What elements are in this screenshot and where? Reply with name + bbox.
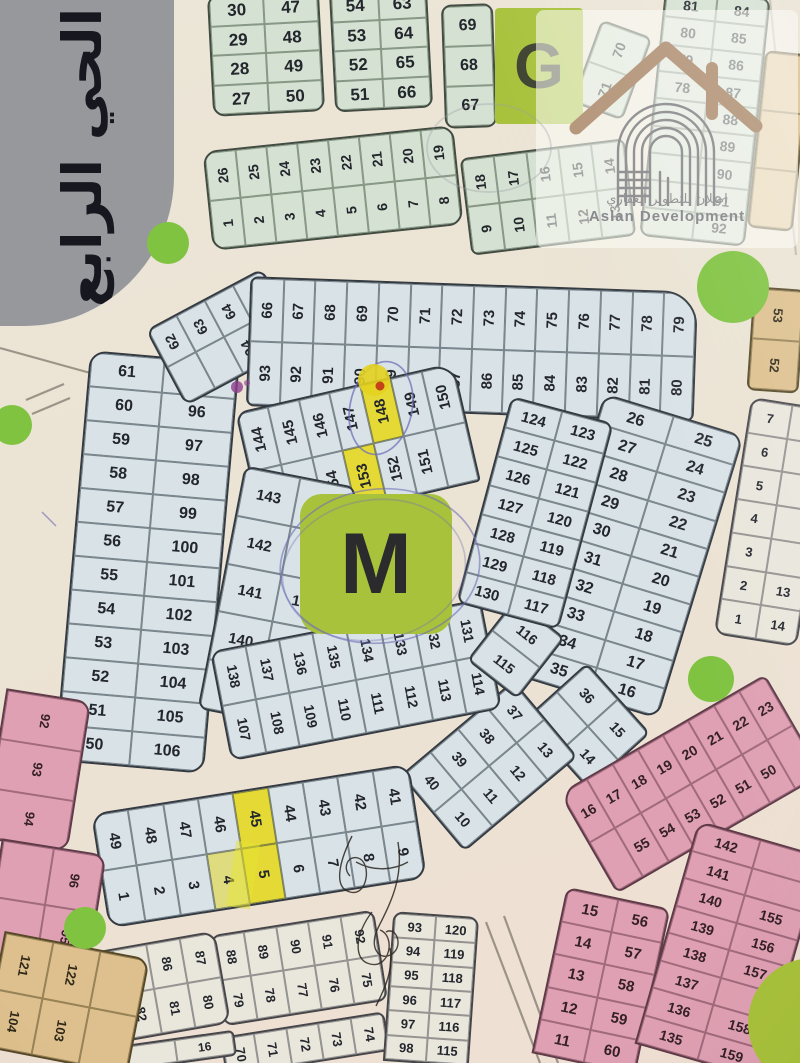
- plot-block-ring-bottom: 494847464544434241123456789: [91, 764, 427, 929]
- watermark-arabic-text: اصلان للتطوير العقاري: [606, 192, 727, 207]
- plot-cell-74: 74: [504, 287, 538, 351]
- plot-cell: [79, 1008, 137, 1063]
- plot-cell-80: 80: [187, 977, 228, 1027]
- plot-cell-2: 2: [241, 194, 277, 245]
- plot-cell-14: 14: [756, 605, 800, 645]
- district-sign: الحي الرابع: [0, 0, 174, 326]
- pen-tick: [42, 512, 56, 526]
- plot-cell-26: 26: [205, 150, 241, 201]
- plot-block-top-b: 5463536452655166: [329, 0, 433, 112]
- plot-cell-24: 24: [266, 144, 302, 195]
- district-sign-text: الحي الرابع: [52, 7, 115, 306]
- plot-cell-54: 54: [331, 0, 379, 22]
- roundabout-circle: [64, 907, 106, 949]
- plot-cell-72: 72: [440, 285, 474, 349]
- plot-cell-93: 93: [393, 913, 436, 940]
- plot-block-top-a: 3047294828492750: [207, 0, 325, 117]
- plot-cell-119: 119: [433, 940, 476, 967]
- district-m-block: M: [300, 494, 452, 634]
- plot-cell-47: 47: [263, 0, 318, 24]
- plot-cell-68: 68: [314, 281, 348, 345]
- plot-cell-69: 69: [443, 5, 492, 47]
- plot-cell-77: 77: [599, 290, 633, 354]
- plot-cell-6: 6: [364, 182, 400, 233]
- plot-cell-65: 65: [381, 47, 429, 79]
- plot-cell-115: 115: [426, 1038, 469, 1063]
- plot-cell-96: 96: [388, 986, 431, 1013]
- plot-cell-96: 96: [45, 849, 104, 913]
- plot-map-photo: 3047294828492750546353645265516669686726…: [0, 0, 800, 1063]
- plot-cell-19: 19: [420, 127, 456, 178]
- district-m-letter: M: [340, 515, 412, 614]
- plot-cell-71: 71: [409, 284, 443, 348]
- plot-cell-120: 120: [434, 916, 477, 943]
- plot-cell-118: 118: [431, 965, 474, 992]
- plot-cell-93: 93: [248, 341, 282, 405]
- plot-cell-1: 1: [716, 599, 761, 639]
- plot-cell-4: 4: [302, 188, 338, 239]
- plot-cell-75: 75: [535, 288, 569, 352]
- plot-cell-67: 67: [446, 85, 495, 127]
- plot-cell-23: 23: [297, 140, 333, 191]
- plot-cell-116: 116: [428, 1013, 471, 1040]
- roundabout-circle: [688, 656, 734, 702]
- plot-cell-1: 1: [210, 198, 246, 249]
- plot-cell-78: 78: [630, 292, 664, 356]
- plot-cell-117: 117: [429, 989, 472, 1016]
- plot-cell-92: 92: [340, 912, 379, 961]
- plot-cell-20: 20: [390, 131, 426, 182]
- plot-cell-52: 52: [749, 338, 800, 391]
- plot-cell-22: 22: [328, 137, 364, 188]
- plot-cell-28: 28: [212, 53, 267, 85]
- plot-cell-30: 30: [209, 0, 264, 26]
- plot-cell-9: 9: [381, 821, 425, 882]
- plot-block-south-1: 88899091927978777675: [210, 910, 388, 1027]
- plot-cell-94: 94: [392, 938, 435, 965]
- plot-cell-76: 76: [567, 289, 601, 353]
- plot-cell-66: 66: [383, 76, 431, 108]
- plot-cell-70: 70: [377, 283, 411, 347]
- plot-cell-95: 95: [390, 962, 433, 989]
- aslan-logo-icon: [536, 10, 798, 206]
- plot-cell-80: 80: [660, 356, 694, 420]
- plot-cell-48: 48: [264, 21, 319, 53]
- roundabout-circle: [697, 251, 769, 323]
- plot-cell-69: 69: [345, 282, 379, 346]
- plot-block-west-1: 929394: [0, 688, 91, 852]
- aslan-development-watermark: اصلان للتطوير العقاري Aslan Development: [536, 10, 798, 248]
- plot-cell-49: 49: [266, 50, 321, 82]
- plot-cell-21: 21: [359, 134, 395, 185]
- plot-cell-74: 74: [350, 1014, 388, 1055]
- plot-cell-29: 29: [211, 24, 266, 56]
- plot-cell-27: 27: [214, 82, 269, 114]
- plot-cell-75: 75: [347, 955, 386, 1004]
- plot-cell-83: 83: [565, 352, 599, 416]
- plot-cell-64: 64: [379, 17, 427, 49]
- plot-cell-68: 68: [444, 45, 493, 87]
- plot-cell-98: 98: [385, 1035, 428, 1062]
- plot-cell-106: 106: [129, 731, 205, 771]
- plot-cell-97: 97: [387, 1010, 430, 1037]
- plot-block-south-4: 931209411995118961179711698115: [383, 911, 479, 1063]
- plot-cell-73: 73: [472, 286, 506, 350]
- plot-block-strip-1: 262524232221201912345678: [202, 125, 463, 251]
- plot-cell: [90, 952, 148, 1017]
- plot-cell-86: 86: [470, 349, 504, 413]
- plot-cell-8: 8: [425, 175, 461, 226]
- plot-cell-52: 52: [334, 49, 382, 81]
- plot-cell-66: 66: [250, 278, 284, 342]
- plot-cell-41: 41: [372, 766, 416, 827]
- plot-cell-87: 87: [180, 933, 221, 983]
- plot-cell-53: 53: [333, 20, 381, 52]
- plot-cell-50: 50: [268, 80, 323, 112]
- plot-cell-79: 79: [662, 293, 696, 357]
- plot-cell-5: 5: [333, 185, 369, 236]
- roundabout-circle: [0, 405, 32, 445]
- plot-cell-25: 25: [235, 147, 271, 198]
- watermark-english-text: Aslan Development: [589, 208, 745, 225]
- plot-cell-67: 67: [282, 279, 316, 343]
- plot-block-top-c: 696867: [441, 3, 497, 129]
- plot-cell-3: 3: [271, 191, 307, 242]
- roundabout-circle: [147, 222, 189, 264]
- plot-cell-51: 51: [336, 78, 384, 110]
- plot-cell-7: 7: [395, 178, 431, 229]
